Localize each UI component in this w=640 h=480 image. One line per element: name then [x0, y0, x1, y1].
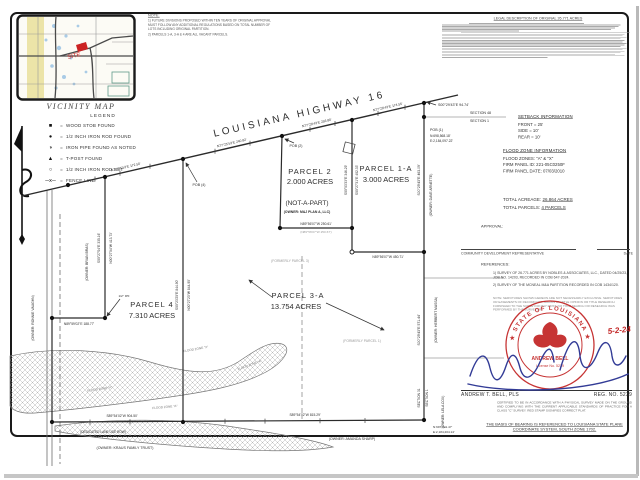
bearing: N00°27'23"W 844.90' [187, 279, 191, 311]
flood-row: FIRM PANEL DATE: 07/03/2010 [503, 168, 573, 174]
reference-item: 2) SURVEY OF THE MCNEAL M&A PARTITION RE… [493, 283, 631, 288]
owner-lela-cox: (OWNER: LELA COX) [441, 396, 445, 429]
bearing: S00°27'31"E 402.33' [355, 165, 359, 196]
basis-of-bearing: THE BASIS OF BEARING IS REFERENCED TO LO… [477, 422, 632, 443]
iron-rod-set-symbol [350, 250, 354, 254]
owner-kraus-trust: (OWNER: KRAUS FAMILY TRUST) [97, 446, 154, 450]
date-label: DATE [624, 251, 633, 256]
approval-signature-line [461, 249, 576, 250]
section-1-top: SECTION 1 [470, 119, 489, 123]
formerly-parcel-1: (FORMERLY PARCEL 1) [343, 339, 381, 343]
community-dev-label: COMMUNITY DEVELOPMENT REPRESENTATIVE [461, 251, 544, 256]
surveyor-name: ANDREW T. BELL, PLS [461, 392, 519, 398]
corner-east: E:2,184,204.14' [433, 430, 455, 434]
bearing: N00°27'04"W 413.73' [109, 232, 113, 264]
bearing: S00°27'04"E 335.16' [97, 233, 101, 264]
totals-block: TOTAL ACREAGE: 26.864 ACRES TOTAL PARCEL… [503, 197, 573, 223]
parcel-3a-acres: 13.754 ACRES [271, 302, 321, 311]
bearing: S00°29'43"E 463.09' [417, 164, 421, 195]
parcel-4-label: PARCEL 4 [130, 300, 173, 309]
references-heading: REFERENCES: [481, 262, 541, 267]
lane-row-label: (DEDICATED LANE USE ROW) [80, 430, 126, 434]
formerly-parcel-3: (FORMERLY PARCEL 3) [271, 259, 309, 263]
pob-2: POB (2) [290, 144, 303, 148]
total-acreage-label: TOTAL ACREAGE: [503, 197, 541, 202]
owner-herbert-massa: (OWNER: HERBERT MASSA) [434, 297, 438, 343]
owner-dave-arnette: (OWNER: DAVE ARNETTE) [429, 174, 433, 217]
parcel-2-acres: 2.000 ACRES [287, 177, 333, 186]
total-acreage-value: 26.864 ACRES [542, 197, 572, 202]
bearing: N89°56'07"W 450.71' [372, 255, 404, 259]
parcel-3a-label: PARCEL 3-A [272, 291, 325, 300]
parcel-1a-label: PARCEL 1-A [360, 164, 413, 173]
parcel-2-notapart: (NOT-A-PART) [285, 200, 328, 207]
flood-heading: FLOOD ZONE INFORMATION [503, 148, 573, 153]
owner-amanda-sharp: (OWNER: AMANDA SHARP) [329, 437, 376, 441]
ipf-note: 1/2" IPF [118, 294, 129, 298]
setback-row: REAR = 10' [518, 134, 580, 140]
owner-ronnie-vaughn: (OWNER: RONNIE VAUGHN) [31, 295, 35, 341]
parcel-1a-acres: 3.000 ACRES [363, 175, 409, 184]
servitude-note-text: NOTE: SERVITUDES SHOWN HEREON ARE NOT NE… [493, 297, 625, 313]
shed-symbol [343, 142, 355, 154]
approval-block: APPROVAL: [481, 224, 581, 233]
pob-1: POB (1) [430, 128, 443, 132]
parcel-2-owner: (OWNER: M&J PLAN A, LLC) [284, 210, 330, 214]
bearing-record: (N89°56'07"W 250.67') [300, 230, 331, 234]
bearing: S00°23'25"E 844.90' [175, 280, 179, 311]
parcel-2-label: PARCEL 2 [288, 167, 331, 176]
section-1-bottom: SECTION 1 [425, 389, 429, 407]
section-31: SECTION 31 [417, 388, 421, 407]
total-parcels-value: 4 PARCELS [541, 205, 565, 210]
certification-text: CERTIFIED TO BE IN ACCORDANCE WITH A PHY… [497, 401, 632, 413]
parcel-4-acres: 7.310 ACRES [129, 311, 175, 320]
approval-date-line [597, 249, 630, 250]
bearing: N89°56'07"W 250.61' [300, 222, 332, 226]
bearing: S89°54'02"W 904.50' [106, 414, 137, 418]
corner-north: N:697,141.47' [433, 425, 453, 429]
pob-4: POB (4) [193, 183, 206, 187]
owner-brian-bras: (OWNER: BRIAN BRAS) [85, 243, 89, 281]
servitude-note: NOTE: SERVITUDES SHOWN HEREON ARE NOT NE… [493, 297, 625, 328]
pob-1-east: E:2,184,097.22' [430, 139, 453, 143]
bearing: N89°59'02"E 188.77' [64, 322, 95, 326]
approval-label: APPROVAL: [481, 224, 531, 229]
approval-labels: COMMUNITY DEVELOPMENT REPRESENTATIVE DAT… [461, 251, 633, 260]
survey-plat-sheet: SITE VICINITY MAP LEGEND ■=WOOD STOB FOU… [0, 0, 640, 480]
bearing: S00°03'33"E 346.29' [344, 165, 348, 196]
total-parcels-label: TOTAL PARCELS: [503, 205, 540, 210]
references-heading-wrap: REFERENCES: [481, 262, 601, 271]
bearing: S89°54'02"W 815.29' [289, 413, 320, 417]
flood-zone-a: FLOOD ZONE "A" [152, 404, 177, 410]
section-48: SECTION 48 [470, 111, 491, 115]
bearing: S00°29'43"E 571.44' [417, 314, 421, 345]
bearing: N77°25'53"E 172.50' [111, 162, 142, 173]
flood-zone-area [10, 343, 333, 451]
bearing: N77°29'43"E 256.80' [302, 118, 333, 129]
bearing: S00°29'43"E 94.74' [438, 103, 469, 107]
surveyor-reg-no: REG. NO. 5239 [594, 392, 632, 398]
flood-info: FLOOD ZONE INFORMATION FLOOD ZONES: "A" … [503, 148, 573, 200]
reference-item: 1) SURVEY OF 26.771 ACRES BY NOBLES & AS… [493, 271, 631, 280]
surveyor-signature-line [461, 390, 632, 391]
pob-1-north: N:698,568.18' [430, 134, 451, 138]
flood-zone-x: FLOOD ZONE "X" [183, 345, 209, 353]
basis-of-bearing-text: THE BASIS OF BEARING IS REFERENCED TO LO… [477, 422, 632, 432]
setback-heading: SETBACK INFORMATION [518, 114, 580, 119]
